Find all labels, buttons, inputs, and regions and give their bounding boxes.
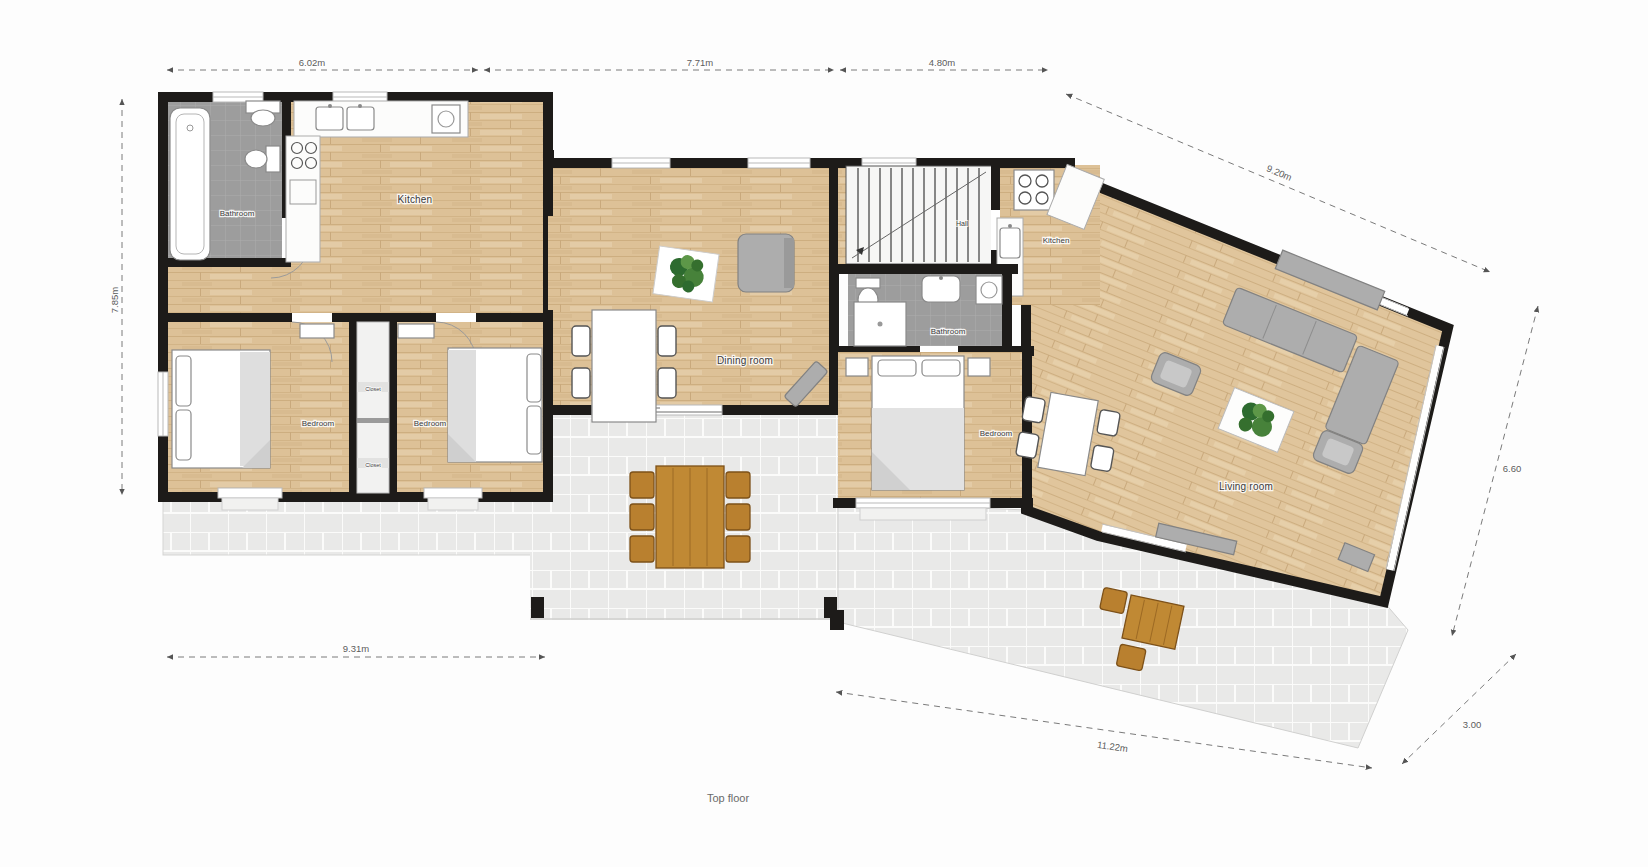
stove: [1014, 170, 1054, 210]
kitchen-sink: [1000, 228, 1020, 258]
dim-top-middle: 7.71m: [687, 57, 713, 68]
nightstand: [846, 358, 868, 376]
dim-bottom-terrace: 11.22m: [1096, 739, 1128, 754]
chair: [572, 368, 590, 398]
chair: [572, 326, 590, 356]
room-label-kitchen-left: Kitchen: [398, 194, 433, 205]
dim-bottom-left: 9.31m: [343, 643, 369, 654]
room-label-dining-room: Dining room: [717, 355, 773, 366]
window: [218, 488, 282, 498]
dresser: [300, 324, 334, 338]
floor-plan-drawing: Bathroom Kitchen Bedroom Bedroom Closet …: [0, 0, 1648, 867]
staircase: [846, 166, 994, 264]
outdoor-chair: [1100, 587, 1128, 614]
appliance: [432, 105, 460, 133]
toilet: [245, 150, 267, 168]
terrace-left-strip: [163, 497, 545, 555]
outdoor-chair: [726, 472, 750, 498]
dim-upper-right-diagonal: 9.20m: [1265, 163, 1294, 183]
kitchen-counter-side: [286, 136, 320, 262]
outdoor-chair: [726, 536, 750, 562]
kitchen-sink: [347, 107, 374, 130]
pillow: [176, 356, 191, 406]
chair: [1016, 432, 1040, 459]
room-label-bedroom-left-1: Bedroom: [302, 419, 335, 428]
dining-table: [592, 310, 656, 422]
terrace-dining-set: [630, 466, 750, 568]
room-label-closet-bottom: Closet: [365, 462, 381, 468]
outdoor-chair: [630, 536, 654, 562]
plan-caption: Top floor: [707, 792, 750, 804]
plant-on-mat: [653, 246, 719, 302]
chair: [1090, 445, 1114, 472]
dim-lower-right-diagonal: 3.00: [1463, 719, 1482, 730]
wall-stub: [531, 597, 544, 618]
kitchen-sink: [316, 107, 343, 130]
room-label-living-room: Living room: [1219, 481, 1273, 492]
outdoor-chair: [630, 472, 654, 498]
pillow: [922, 360, 960, 376]
dim-top-left: 6.02m: [299, 57, 325, 68]
chair: [658, 326, 676, 356]
nightstand: [968, 358, 990, 376]
outdoor-chair: [726, 504, 750, 530]
outdoor-chair: [1116, 644, 1146, 671]
chair: [658, 368, 676, 398]
pillow: [176, 410, 191, 460]
dim-left-side: 7.85m: [109, 287, 120, 313]
dim-top-right: 4.80m: [929, 57, 955, 68]
toilet-tank: [856, 278, 880, 288]
sink: [251, 110, 275, 126]
room-label-closet-top: Closet: [365, 386, 381, 392]
washing-machine: [976, 276, 1002, 304]
room-label-bedroom-right: Bedroom: [980, 429, 1013, 438]
room-label-kitchen-right: Kitchen: [1043, 236, 1070, 245]
pillow: [527, 406, 541, 454]
dim-right-side: 6.60: [1503, 463, 1522, 474]
pillow: [878, 360, 916, 376]
hall-block: [833, 158, 1003, 272]
pillow: [527, 354, 541, 402]
room-label-bedroom-left-2: Bedroom: [414, 419, 447, 428]
room-label-bathroom-left: Bathroom: [220, 209, 255, 218]
outdoor-chair: [630, 504, 654, 530]
wall-stub: [830, 610, 844, 630]
toilet-tank: [266, 146, 280, 172]
dresser: [398, 324, 434, 338]
room-label-bathroom-right: Bathroom: [931, 327, 966, 336]
chair: [1097, 409, 1121, 436]
room-label-hall: Hall: [956, 220, 969, 227]
window: [424, 488, 482, 498]
chair: [1022, 396, 1046, 423]
floor-plan-page: Bathroom Kitchen Bedroom Bedroom Closet …: [0, 0, 1648, 867]
